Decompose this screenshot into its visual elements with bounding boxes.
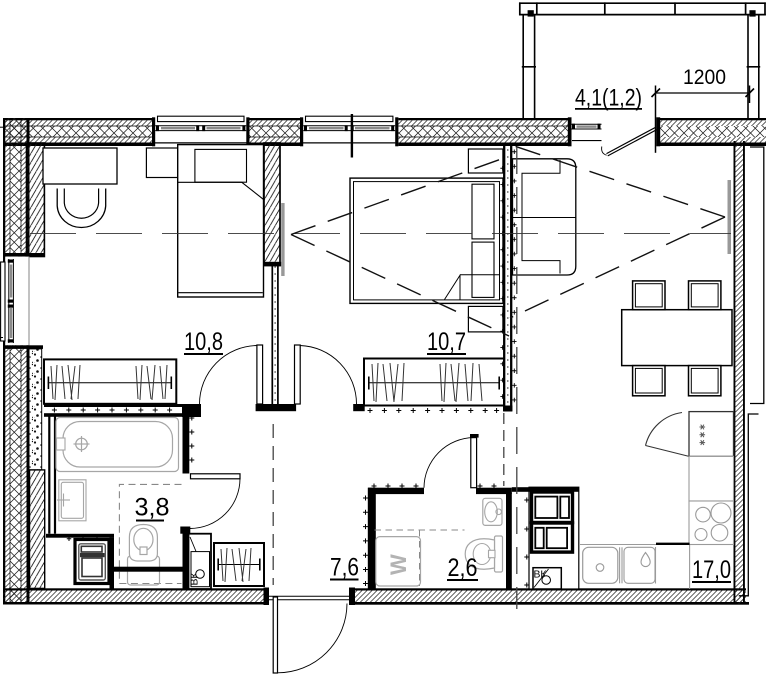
- svg-text:10,7: 10,7: [427, 328, 466, 356]
- svg-text:3,8: 3,8: [135, 494, 170, 522]
- svg-text:10,8: 10,8: [184, 328, 223, 356]
- svg-text:1200: 1200: [683, 66, 726, 89]
- svg-text:W: W: [386, 554, 411, 575]
- svg-text:17,0: 17,0: [692, 556, 731, 584]
- svg-text:2,6: 2,6: [448, 554, 478, 582]
- svg-text:4,1(1,2): 4,1(1,2): [575, 85, 642, 112]
- svg-text:7,6: 7,6: [330, 554, 359, 582]
